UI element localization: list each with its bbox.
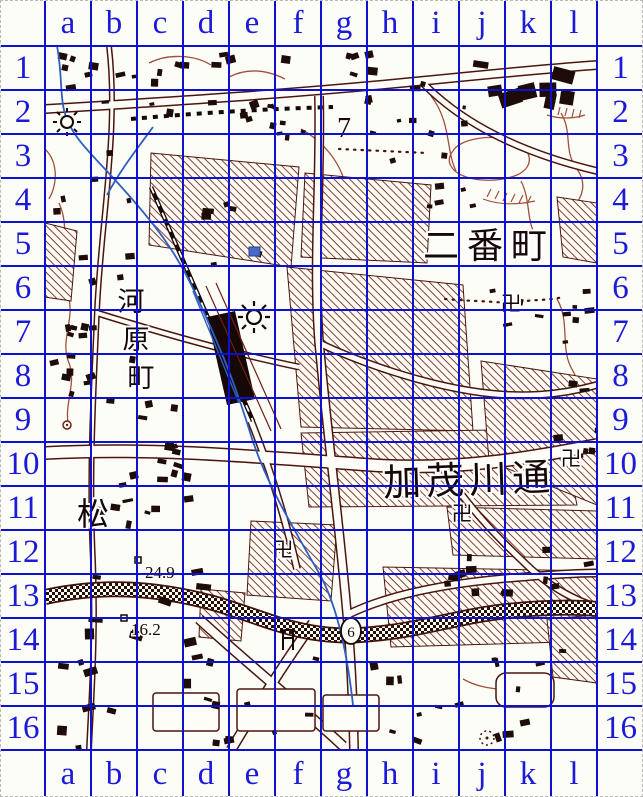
col-label-top-f: f — [275, 1, 321, 46]
col-label-top-h: h — [367, 1, 413, 46]
col-label-top-l: l — [551, 1, 597, 46]
col-label-bottom-f: f — [275, 750, 321, 797]
row-label-right-14: 14 — [597, 618, 643, 662]
building-block — [568, 380, 578, 388]
building-block — [305, 713, 313, 717]
building-block — [588, 447, 595, 454]
building-block — [559, 649, 566, 653]
building-block — [516, 686, 521, 692]
building-block — [462, 105, 466, 109]
building-block — [66, 368, 73, 375]
col-label-top-i: i — [413, 1, 459, 46]
row-label-left-10: 10 — [1, 442, 45, 486]
grid-line-horizontal — [1, 661, 643, 664]
grid-line-horizontal — [1, 573, 643, 576]
building-block — [211, 62, 221, 68]
grid-line-horizontal — [1, 309, 643, 312]
building-block — [229, 206, 236, 212]
building-block — [386, 676, 394, 685]
row-label-left-4: 4 — [1, 178, 45, 222]
building-block — [583, 448, 589, 454]
row-label-left-14: 14 — [1, 618, 45, 662]
place-label-kamogawa-dori: 加茂川通 — [382, 457, 555, 505]
row-label-right-6: 6 — [597, 266, 643, 310]
row-label-left-13: 13 — [1, 574, 45, 618]
building-block — [543, 576, 548, 584]
map-numeral-7: 7 — [337, 113, 351, 144]
row-label-left-12: 12 — [1, 530, 45, 574]
row-label-left-2: 2 — [1, 90, 45, 134]
row-label-right-16: 16 — [597, 706, 643, 750]
gridded-map-frame: 二番町 加茂川通 河原町 松 24.9 16.2 7 6 卍 卍 卍 卍 aab… — [0, 0, 643, 797]
grid-line-horizontal — [1, 705, 643, 708]
building-block — [106, 150, 113, 156]
col-label-bottom-i: i — [413, 750, 459, 797]
building-block — [563, 311, 572, 316]
building-block — [125, 253, 135, 260]
building-block — [151, 506, 160, 512]
row-label-left-9: 9 — [1, 398, 45, 442]
row-label-left-15: 15 — [1, 662, 45, 706]
building-block — [461, 120, 468, 126]
building-block — [110, 503, 120, 511]
building-block — [202, 208, 214, 214]
row-label-left-5: 5 — [1, 222, 45, 266]
grid-line-horizontal — [1, 221, 643, 224]
building-block — [441, 152, 447, 159]
row-label-left-3: 3 — [1, 134, 45, 178]
well-icon — [63, 421, 71, 429]
col-label-top-b: b — [91, 1, 137, 46]
row-label-left-16: 16 — [1, 706, 45, 750]
col-label-bottom-c: c — [137, 750, 183, 797]
row-label-right-13: 13 — [597, 574, 643, 618]
row-label-left-7: 7 — [1, 310, 45, 354]
col-label-bottom-l: l — [551, 750, 597, 797]
col-label-bottom-k: k — [505, 750, 551, 797]
building-block — [151, 79, 158, 87]
route-number: 6 — [347, 625, 355, 641]
building-block — [145, 400, 153, 408]
col-label-top-g: g — [321, 1, 367, 46]
row-label-right-5: 5 — [597, 222, 643, 266]
building-block — [117, 274, 124, 280]
factory-gear-icon — [238, 301, 270, 333]
col-label-top-e: e — [229, 1, 275, 46]
grid-line-horizontal — [1, 89, 643, 92]
row-label-right-12: 12 — [597, 530, 643, 574]
building-block — [212, 739, 220, 746]
grid-line-horizontal — [1, 441, 643, 444]
building-block — [572, 317, 579, 323]
building-block — [559, 90, 575, 106]
grid-line-horizontal — [1, 265, 643, 268]
col-label-top-k: k — [505, 1, 551, 46]
building-block — [184, 495, 194, 502]
building-block — [58, 663, 69, 670]
col-label-top-a: a — [45, 1, 91, 46]
building-block — [101, 100, 109, 104]
place-label-matsu: 松 — [77, 496, 109, 532]
building-block — [281, 55, 291, 64]
building-block — [444, 580, 451, 587]
grid-line-horizontal — [1, 529, 643, 532]
building-block — [471, 588, 479, 596]
building-block — [467, 554, 472, 561]
grid-line-horizontal — [1, 485, 643, 488]
building-block — [78, 332, 87, 338]
col-label-bottom-a: a — [45, 750, 91, 797]
row-label-right-10: 10 — [597, 442, 643, 486]
col-label-top-d: d — [183, 1, 229, 46]
row-label-right-15: 15 — [597, 662, 643, 706]
row-label-left-1: 1 — [1, 46, 45, 90]
place-label-nibancho: 二番町 — [423, 226, 555, 266]
row-label-right-7: 7 — [597, 310, 643, 354]
building-block — [57, 725, 67, 735]
building-block — [78, 255, 88, 261]
col-label-bottom-h: h — [367, 750, 413, 797]
temple-mark: 卍 — [452, 502, 473, 526]
temple-mark: 卍 — [561, 447, 582, 471]
row-label-right-9: 9 — [597, 398, 643, 442]
row-label-right-3: 3 — [597, 134, 643, 178]
col-label-bottom-d: d — [183, 750, 229, 797]
building-block — [427, 204, 433, 208]
building-block — [583, 289, 591, 294]
grid-line-horizontal — [1, 353, 643, 356]
building-block — [157, 69, 163, 77]
building-block — [166, 108, 174, 117]
row-label-right-11: 11 — [597, 486, 643, 530]
col-label-bottom-g: g — [321, 750, 367, 797]
grid-line-horizontal — [1, 397, 643, 400]
col-label-top-c: c — [137, 1, 183, 46]
row-label-left-6: 6 — [1, 266, 45, 310]
row-label-right-2: 2 — [597, 90, 643, 134]
building-block — [157, 476, 168, 482]
building-block — [53, 208, 61, 215]
row-label-right-8: 8 — [597, 354, 643, 398]
col-label-bottom-e: e — [229, 750, 275, 797]
row-label-left-11: 11 — [1, 486, 45, 530]
blue-marker-icon — [249, 247, 260, 256]
building-block — [280, 121, 286, 126]
row-label-right-4: 4 — [597, 178, 643, 222]
col-label-bottom-b: b — [91, 750, 137, 797]
col-label-top-j: j — [459, 1, 505, 46]
building-block — [240, 112, 248, 119]
grid-line-horizontal — [1, 133, 643, 136]
building-block — [208, 100, 217, 106]
row-label-right-1: 1 — [597, 46, 643, 90]
building-block — [170, 404, 178, 412]
row-label-left-8: 8 — [1, 354, 45, 398]
grid-line-horizontal — [1, 177, 643, 180]
building-block — [435, 183, 445, 190]
grid-line-horizontal — [1, 617, 643, 620]
col-label-bottom-j: j — [459, 750, 505, 797]
